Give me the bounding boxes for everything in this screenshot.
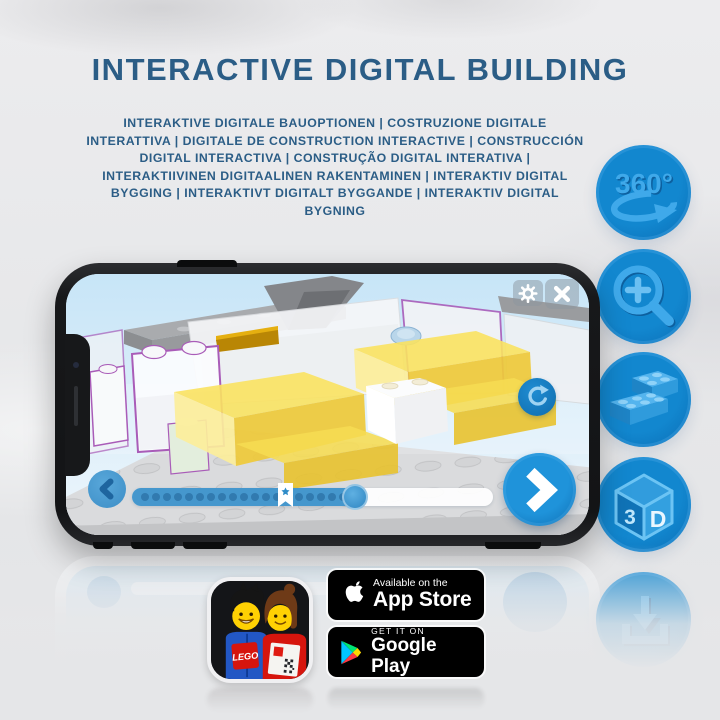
google-play-name: Google Play bbox=[371, 636, 472, 677]
gear-icon bbox=[515, 282, 541, 305]
rotate-view-button[interactable] bbox=[518, 378, 556, 416]
apple-icon bbox=[340, 580, 364, 610]
close-icon bbox=[549, 283, 575, 305]
feature-badge-brick bbox=[596, 352, 691, 447]
next-step-button[interactable] bbox=[503, 453, 576, 526]
promo-canvas: INTERACTIVE DIGITAL BUILDING INTERAKTIVE… bbox=[0, 0, 720, 720]
app-store-badge[interactable]: Available on the App Store bbox=[328, 570, 484, 620]
speaker bbox=[74, 386, 78, 426]
zoom-in-icon bbox=[596, 249, 691, 344]
lego-minifigures-art: LEGO bbox=[211, 581, 309, 679]
previous-step-button[interactable] bbox=[88, 470, 126, 508]
lego-brick-icon bbox=[596, 352, 691, 447]
front-camera bbox=[73, 362, 79, 368]
google-play-icon bbox=[340, 639, 362, 666]
cube-face-d: D bbox=[650, 506, 667, 532]
cube-face-3: 3 bbox=[624, 506, 636, 529]
google-play-badge[interactable]: GET IT ON Google Play bbox=[328, 627, 484, 677]
rotate-icon bbox=[522, 382, 552, 412]
side-button bbox=[485, 542, 541, 549]
download-icon bbox=[596, 572, 691, 667]
subtitle-multilingual: INTERAKTIVE DIGITALE BAUOPTIONEN | COSTR… bbox=[85, 115, 585, 221]
volume-up-button bbox=[131, 542, 175, 549]
cube-3d-icon: 3 D bbox=[596, 457, 691, 552]
app-store-name: App Store bbox=[373, 589, 472, 612]
feature-badge-3d: 3 D bbox=[596, 457, 691, 552]
power-button bbox=[177, 260, 237, 267]
page-title: INTERACTIVE DIGITAL BUILDING bbox=[0, 52, 720, 88]
mute-switch bbox=[93, 542, 113, 549]
close-button[interactable] bbox=[545, 279, 579, 309]
star-icon bbox=[281, 487, 290, 496]
phone-mockup bbox=[55, 263, 600, 546]
feature-badge-zoom bbox=[596, 249, 691, 344]
phone-notch bbox=[65, 334, 90, 476]
build-progress-bar[interactable] bbox=[132, 488, 493, 506]
back-chevron-icon bbox=[88, 470, 126, 508]
settings-button[interactable] bbox=[513, 280, 543, 306]
app-screen bbox=[66, 274, 589, 535]
progress-handle[interactable] bbox=[342, 484, 368, 510]
feature-badge-360: 360° 360° bbox=[596, 145, 691, 240]
next-chevron-icon bbox=[503, 453, 576, 526]
badge-reflection bbox=[328, 688, 484, 710]
lego-app-icon[interactable]: LEGO bbox=[207, 577, 313, 683]
volume-down-button bbox=[183, 542, 227, 549]
progress-fill bbox=[132, 488, 365, 506]
feature-badge-download bbox=[596, 572, 691, 667]
app-icon-reflection bbox=[207, 688, 313, 712]
rotate-360-icon: 360° 360° bbox=[596, 145, 691, 240]
